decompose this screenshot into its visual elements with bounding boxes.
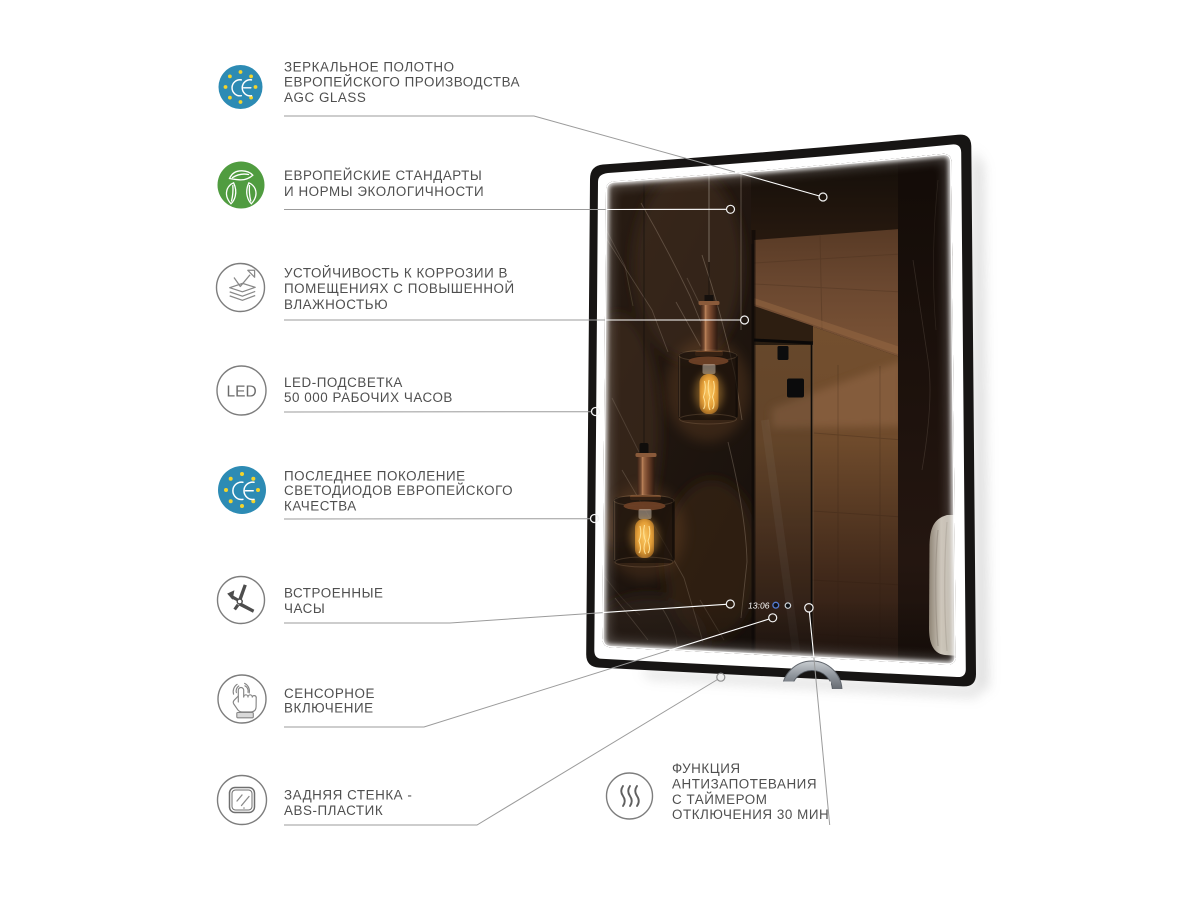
svg-text:ВЛАЖНОСТЬЮ: ВЛАЖНОСТЬЮ	[284, 297, 388, 312]
svg-text:УСТОЙЧИВОСТЬ К КОРРОЗИИ В: УСТОЙЧИВОСТЬ К КОРРОЗИИ В	[284, 266, 508, 281]
svg-text:LED-ПОДСВЕТКА: LED-ПОДСВЕТКА	[284, 375, 403, 390]
svg-text:С ТАЙМЕРОМ: С ТАЙМЕРОМ	[672, 792, 767, 807]
svg-text:ПОСЛЕДНЕЕ ПОКОЛЕНИЕ: ПОСЛЕДНЕЕ ПОКОЛЕНИЕ	[284, 468, 466, 483]
svg-text:ВСТРОЕННЫЕ: ВСТРОЕННЫЕ	[284, 586, 384, 601]
svg-text:AGC GLASS: AGC GLASS	[284, 90, 366, 105]
svg-text:КАЧЕСТВА: КАЧЕСТВА	[284, 498, 357, 513]
svg-text:ВКЛЮЧЕНИЕ: ВКЛЮЧЕНИЕ	[284, 701, 374, 716]
svg-text:LED: LED	[227, 383, 257, 400]
svg-text:ЕВРОПЕЙСКОГО ПРОИЗВОДСТВА: ЕВРОПЕЙСКОГО ПРОИЗВОДСТВА	[284, 75, 520, 90]
svg-text:ЗЕРКАЛЬНОЕ ПОЛОТНО: ЗЕРКАЛЬНОЕ ПОЛОТНО	[284, 59, 455, 74]
svg-text:ЗАДНЯЯ СТЕНКА -: ЗАДНЯЯ СТЕНКА -	[284, 787, 412, 802]
svg-text:СЕНСОРНОЕ: СЕНСОРНОЕ	[284, 686, 375, 701]
svg-text:АНТИЗАПОТЕВАНИЯ: АНТИЗАПОТЕВАНИЯ	[672, 776, 817, 791]
svg-text:ЧАСЫ: ЧАСЫ	[284, 601, 325, 616]
svg-text:ЕВРОПЕЙСКИЕ СТАНДАРТЫ: ЕВРОПЕЙСКИЕ СТАНДАРТЫ	[284, 168, 482, 183]
svg-text:ОТКЛЮЧЕНИЯ 30 МИН: ОТКЛЮЧЕНИЯ 30 МИН	[672, 807, 829, 822]
svg-text:ФУНКЦИЯ: ФУНКЦИЯ	[672, 761, 741, 776]
svg-text:50 000 РАБОЧИХ ЧАСОВ: 50 000 РАБОЧИХ ЧАСОВ	[284, 390, 453, 405]
svg-text:13:06: 13:06	[748, 601, 771, 611]
svg-text:ABS-ПЛАСТИК: ABS-ПЛАСТИК	[284, 803, 383, 818]
svg-text:СВЕТОДИОДОВ ЕВРОПЕЙСКОГО: СВЕТОДИОДОВ ЕВРОПЕЙСКОГО	[284, 483, 513, 498]
svg-text:ПОМЕЩЕНИЯХ С ПОВЫШЕННОЙ: ПОМЕЩЕНИЯХ С ПОВЫШЕННОЙ	[284, 281, 515, 296]
svg-text:И НОРМЫ ЭКОЛОГИЧНОСТИ: И НОРМЫ ЭКОЛОГИЧНОСТИ	[284, 184, 484, 199]
